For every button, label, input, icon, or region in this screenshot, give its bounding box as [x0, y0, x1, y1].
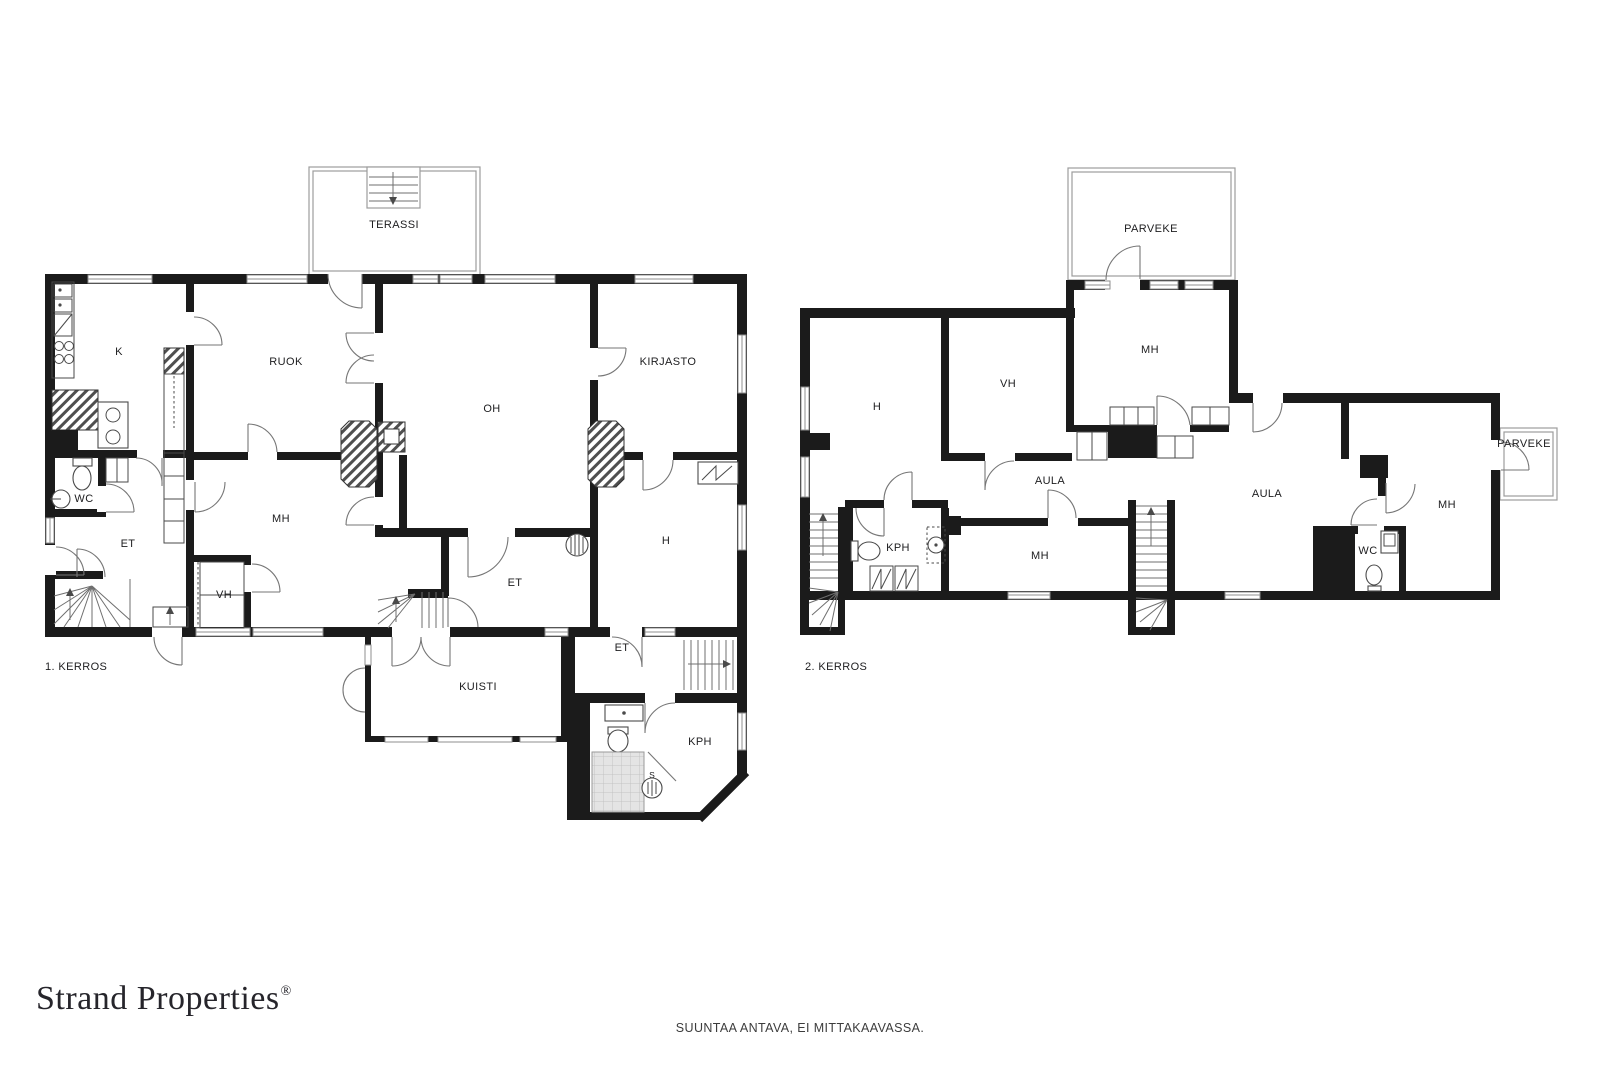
room-label-et-left: ET: [121, 538, 136, 550]
room-label-oh: OH: [483, 403, 500, 415]
room-label-k: K: [115, 346, 123, 358]
room-label-parveke-top: PARVEKE: [1124, 223, 1178, 235]
disclaimer-text: SUUNTAA ANTAVA, EI MITTAKAAVASSA.: [0, 1021, 1600, 1035]
floor2-plan: PARVEKE MH H VH AULA AULA KPH MH WC MH P…: [800, 168, 1557, 673]
room-label-aula-small: AULA: [1035, 475, 1066, 487]
room-label-kuisti: KUISTI: [459, 681, 497, 693]
registered-trademark-symbol: ®: [281, 984, 292, 999]
room-label-h2: H: [873, 401, 881, 413]
room-label-et-lower: ET: [615, 642, 630, 654]
room-label-mh: MH: [272, 513, 290, 525]
room-label-mh-top: MH: [1141, 344, 1159, 356]
room-label-h: H: [662, 535, 670, 547]
room-label-aula: AULA: [1252, 488, 1283, 500]
room-label-vh: VH: [216, 589, 232, 601]
room-label-wc2: WC: [1358, 545, 1377, 557]
floor1-label: 1. KERROS: [45, 661, 107, 673]
room-label-parveke-right: PARVEKE: [1497, 438, 1551, 450]
room-label-mh-right: MH: [1438, 499, 1456, 511]
brand-logo: Strand Properties®: [36, 980, 292, 1018]
room-label-et-center: ET: [508, 577, 523, 589]
room-label-wc: WC: [74, 493, 93, 505]
floor2-room-labels: PARVEKE MH H VH AULA AULA KPH MH WC MH P…: [873, 223, 1551, 562]
room-label-kph: KPH: [688, 736, 712, 748]
room-label-kirjasto: KIRJASTO: [640, 356, 697, 368]
floorplan-canvas: TERASSI K RUOK OH KIRJASTO WC ET MH VH E…: [0, 0, 1600, 1067]
floor1-plan: TERASSI K RUOK OH KIRJASTO WC ET MH VH E…: [44, 167, 747, 820]
floor1-door-openings: [44, 273, 675, 704]
sauna-stove-marker: S: [649, 770, 655, 780]
room-label-vh2: VH: [1000, 378, 1016, 390]
brand-logo-text: Strand Properties: [36, 980, 280, 1017]
floor2-walls: [800, 280, 1500, 635]
room-label-terassi: TERASSI: [369, 219, 419, 231]
floor2-label: 2. KERROS: [805, 661, 867, 673]
room-label-mh-center: MH: [1031, 550, 1049, 562]
floor1-fixtures: [50, 282, 738, 812]
room-label-kph2: KPH: [886, 542, 910, 554]
floor1-windows: [46, 275, 746, 750]
room-label-ruok: RUOK: [269, 356, 303, 368]
